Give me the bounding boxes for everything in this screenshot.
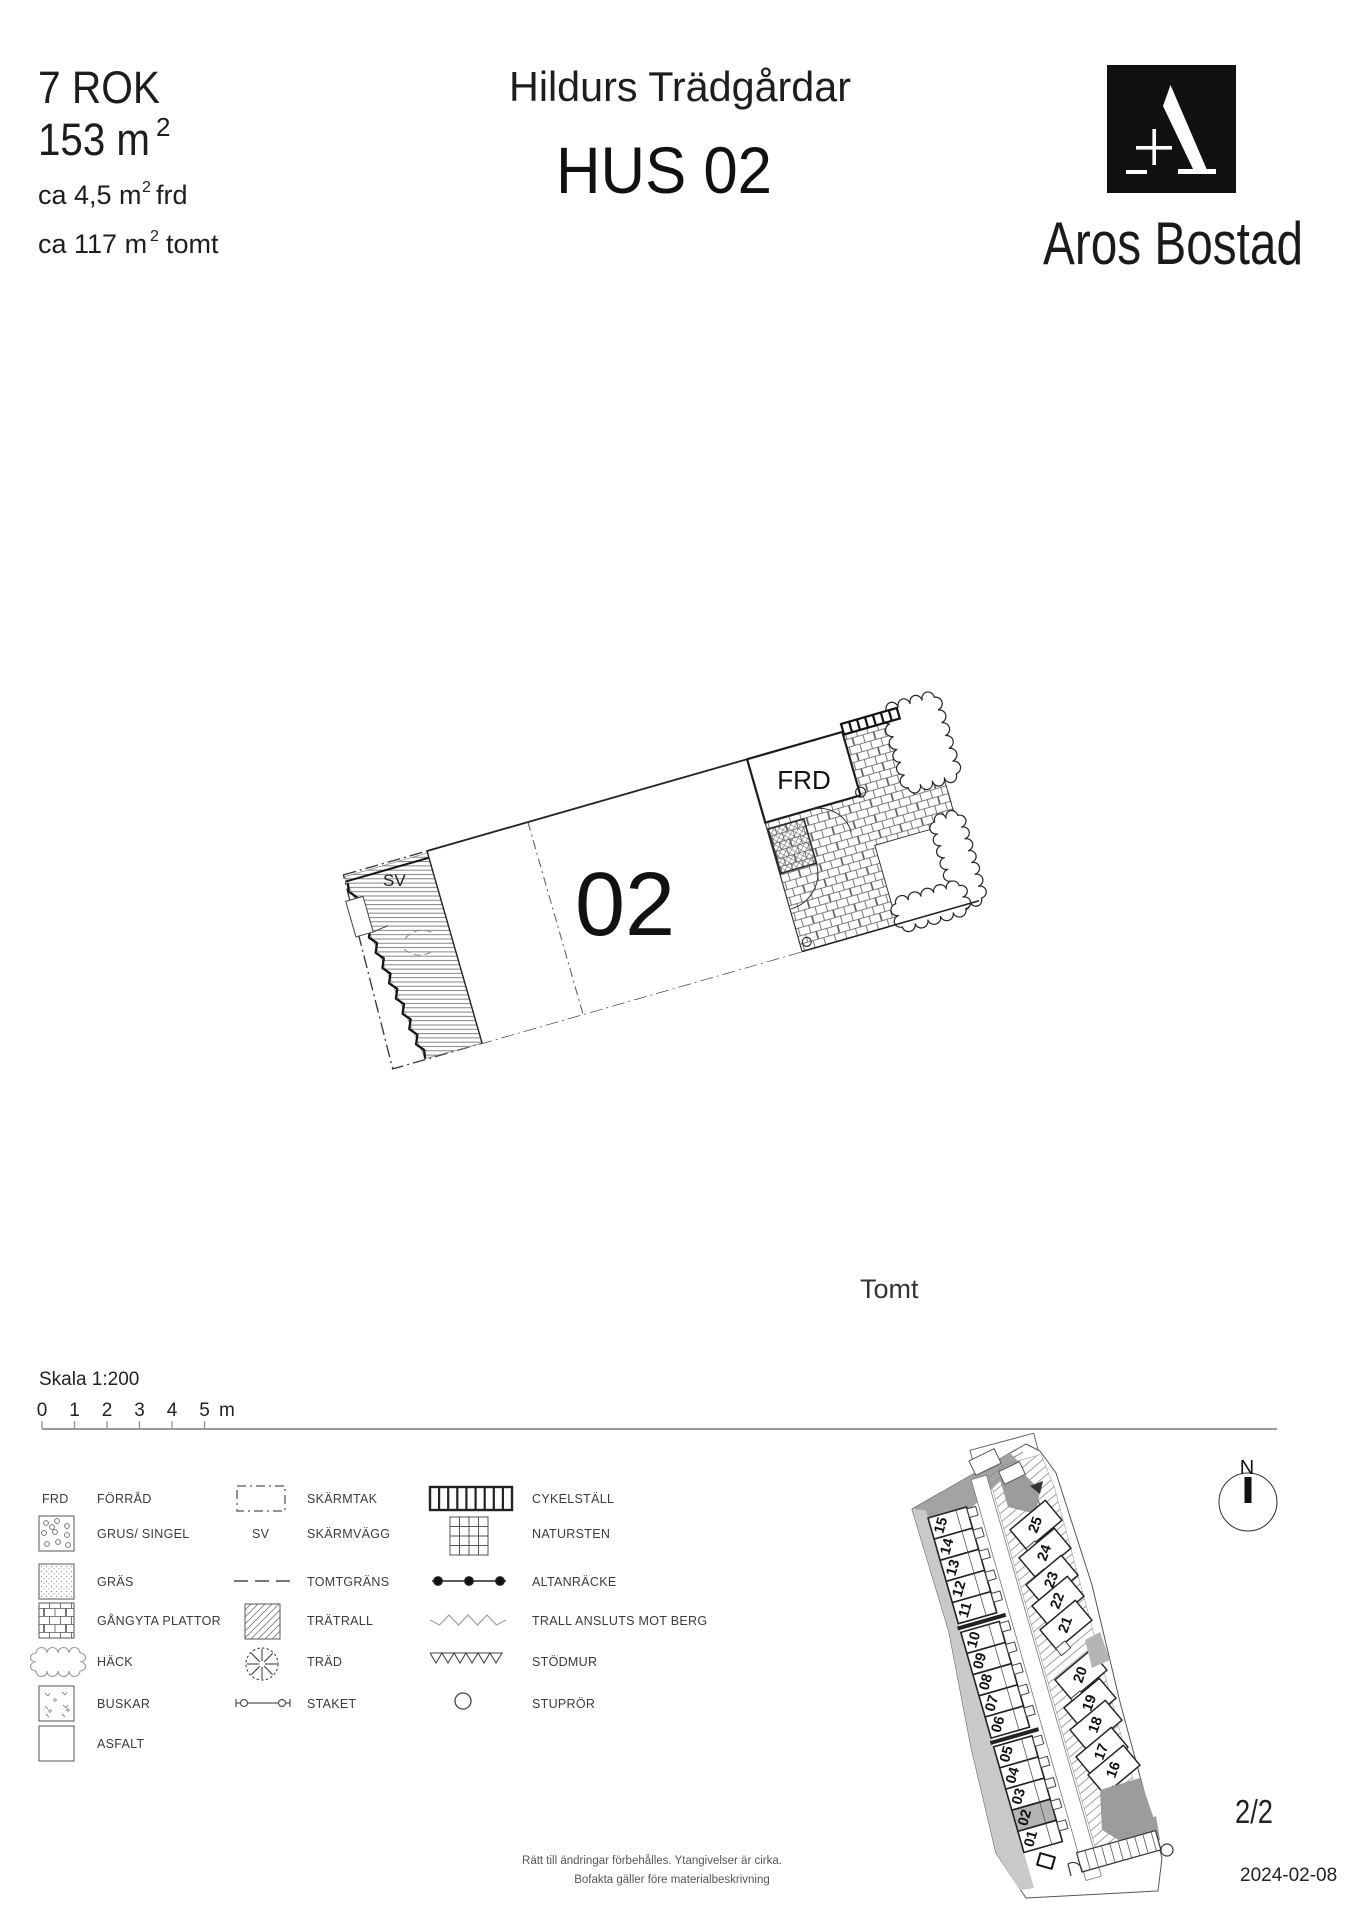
svg-text:5: 5 xyxy=(199,1400,210,1421)
svg-text:ASFALT: ASFALT xyxy=(97,1737,144,1751)
svg-text:3: 3 xyxy=(134,1400,145,1421)
svg-text:ALTANRÄCKE: ALTANRÄCKE xyxy=(532,1575,617,1589)
svg-text:TRALL ANSLUTS MOT BERG: TRALL ANSLUTS MOT BERG xyxy=(532,1614,707,1628)
svg-text:GRÄS: GRÄS xyxy=(97,1575,134,1589)
svg-text:HUS 02: HUS 02 xyxy=(556,133,772,207)
svg-text:STÖDMUR: STÖDMUR xyxy=(532,1655,597,1669)
svg-text:1: 1 xyxy=(69,1400,80,1421)
svg-text:ca 4,5 m: ca 4,5 m xyxy=(38,180,142,210)
svg-text:SKÄRMTAK: SKÄRMTAK xyxy=(307,1492,378,1506)
svg-text:frd: frd xyxy=(156,180,188,210)
svg-text:SV: SV xyxy=(252,1527,270,1541)
svg-text:SKÄRMVÄGG: SKÄRMVÄGG xyxy=(307,1527,390,1541)
svg-text:7 ROK: 7 ROK xyxy=(38,62,160,113)
svg-text:Tomt: Tomt xyxy=(860,1274,919,1304)
svg-text:GÅNGYTA PLATTOR: GÅNGYTA PLATTOR xyxy=(97,1613,221,1628)
svg-text:2: 2 xyxy=(102,1400,113,1421)
svg-text:FRD: FRD xyxy=(42,1492,69,1506)
svg-text:0: 0 xyxy=(37,1400,48,1421)
svg-text:BUSKAR: BUSKAR xyxy=(97,1697,150,1711)
svg-text:FRD: FRD xyxy=(777,765,830,795)
svg-text:4: 4 xyxy=(167,1400,178,1421)
svg-text:TOMTGRÄNS: TOMTGRÄNS xyxy=(307,1575,389,1589)
svg-text:Hildurs Trädgårdar: Hildurs Trädgårdar xyxy=(509,63,851,110)
svg-text:Skala 1:200: Skala 1:200 xyxy=(39,1369,139,1390)
svg-text:N: N xyxy=(1240,1457,1254,1479)
svg-text:2: 2 xyxy=(150,228,159,245)
svg-text:2/2: 2/2 xyxy=(1235,1793,1273,1830)
svg-text:HÄCK: HÄCK xyxy=(97,1655,133,1669)
svg-text:2: 2 xyxy=(142,179,151,196)
svg-text:FÖRRÅD: FÖRRÅD xyxy=(97,1491,152,1506)
svg-text:153 m: 153 m xyxy=(38,114,150,165)
svg-text:CYKELSTÄLL: CYKELSTÄLL xyxy=(532,1492,614,1506)
svg-text:NATURSTEN: NATURSTEN xyxy=(532,1527,610,1541)
svg-text:Aros Bostad: Aros Bostad xyxy=(1043,210,1303,277)
svg-text:STAKET: STAKET xyxy=(307,1697,357,1711)
svg-text:Rätt till ändringar förbehålle: Rätt till ändringar förbehålles. Ytangiv… xyxy=(522,1855,782,1867)
svg-text:m: m xyxy=(219,1400,235,1421)
svg-text:2: 2 xyxy=(156,112,170,142)
svg-text:GRUS/ SINGEL: GRUS/ SINGEL xyxy=(97,1527,190,1541)
svg-text:STUPRÖR: STUPRÖR xyxy=(532,1697,595,1711)
svg-text:SV: SV xyxy=(383,871,406,890)
svg-text:Bofakta gäller före materialbe: Bofakta gäller före materialbeskrivning xyxy=(574,1874,770,1886)
svg-text:2024-02-08: 2024-02-08 xyxy=(1240,1865,1337,1886)
svg-text:TRÄTRALL: TRÄTRALL xyxy=(307,1614,373,1628)
svg-text:tomt: tomt xyxy=(166,229,219,259)
svg-text:ca 117 m: ca 117 m xyxy=(38,229,147,259)
svg-text:02: 02 xyxy=(575,855,675,955)
svg-text:TRÄD: TRÄD xyxy=(307,1655,342,1669)
